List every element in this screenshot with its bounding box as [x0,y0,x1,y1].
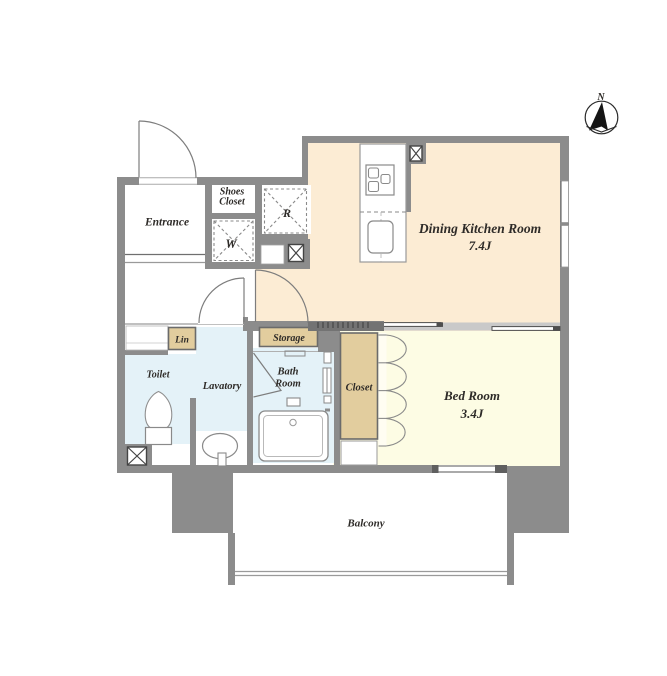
svg-text:Toilet: Toilet [147,370,171,381]
svg-text:7.4J: 7.4J [469,238,492,253]
svg-text:Bed Room: Bed Room [443,388,500,403]
svg-text:Storage: Storage [273,333,305,344]
svg-text:Lavatory: Lavatory [202,381,242,392]
svg-text:Dining Kitchen Room: Dining Kitchen Room [418,221,541,236]
svg-text:Closet: Closet [219,197,246,208]
svg-text:Balcony: Balcony [346,518,384,530]
svg-text:Lin: Lin [174,336,189,346]
svg-text:Entrance: Entrance [144,217,189,229]
svg-text:3.4J: 3.4J [460,406,484,421]
svg-text:Closet: Closet [346,383,374,394]
svg-text:R: R [282,206,291,220]
svg-text:Bath: Bath [276,367,298,378]
svg-text:N: N [596,92,605,103]
svg-text:Room: Room [274,379,301,390]
svg-text:W: W [225,237,237,251]
